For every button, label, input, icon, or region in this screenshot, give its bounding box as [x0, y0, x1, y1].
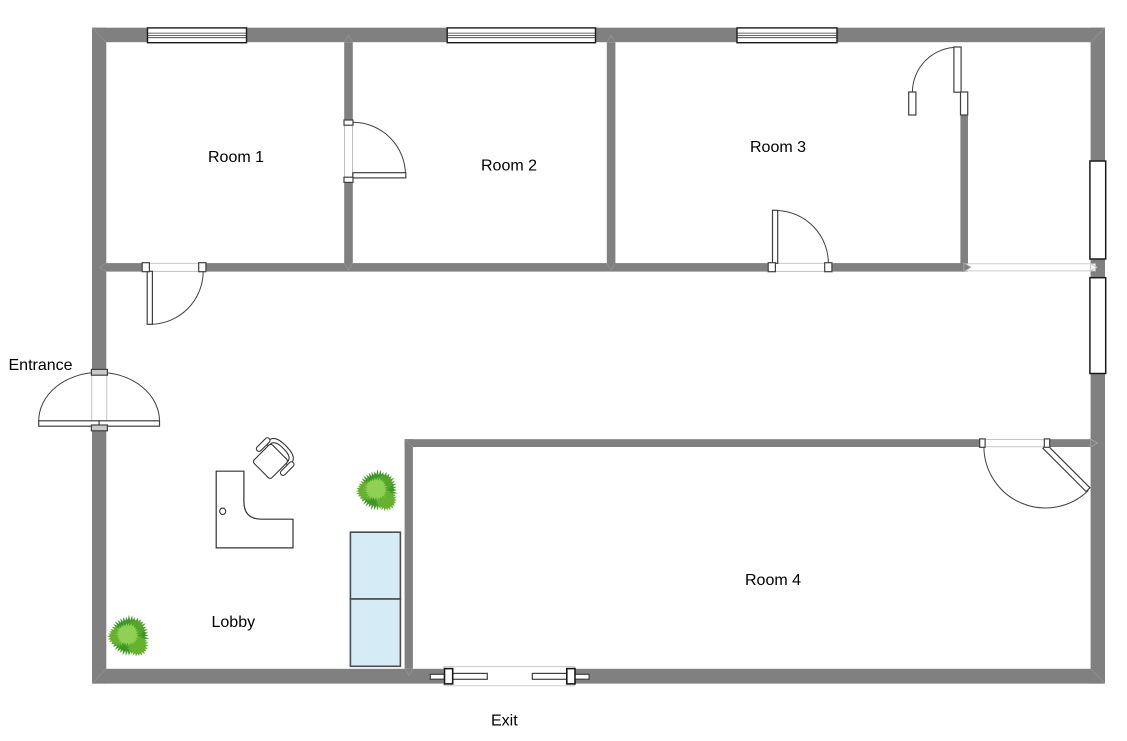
svg-text:Lobby: Lobby [212, 614, 256, 631]
svg-text:Exit: Exit [491, 713, 518, 730]
svg-text:Room 1: Room 1 [208, 149, 264, 166]
svg-text:Room 4: Room 4 [745, 572, 801, 589]
svg-text:Room 2: Room 2 [481, 158, 537, 175]
svg-text:Room 3: Room 3 [750, 139, 806, 156]
svg-text:Entrance: Entrance [9, 357, 73, 374]
